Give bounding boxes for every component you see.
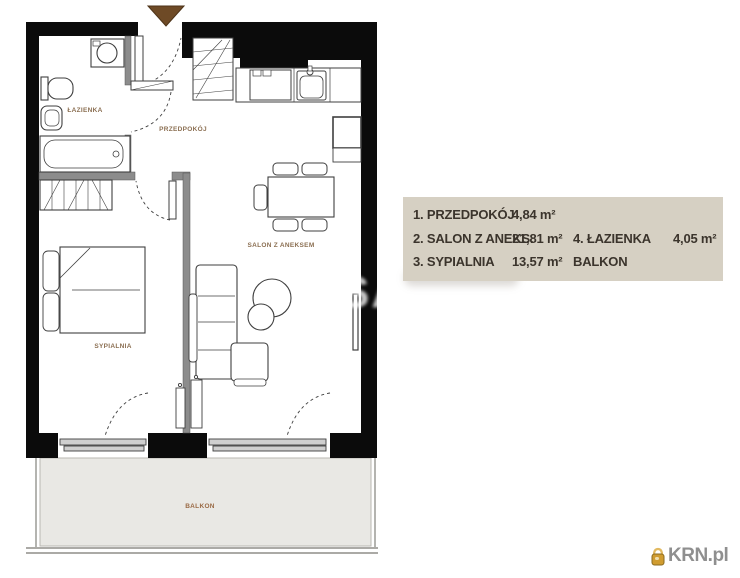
legend-col2-row1 <box>573 208 673 222</box>
legend-room-3-name: 3. SYPIALNIA <box>413 255 512 269</box>
room-label-lazienka: ŁAZIENKA <box>67 107 102 114</box>
kitchen-sink-icon <box>297 66 326 100</box>
stove-icon <box>250 70 291 100</box>
legend-room-4-name: 4. ŁAZIENKA <box>573 232 673 246</box>
floorplan-page: ŁAZIENKA PRZEDPOKÓJ SALON Z ANEKSEM SYPI… <box>0 0 740 578</box>
legend-room-2-area: 21,81 m² <box>512 232 573 246</box>
krn-logo-text: KRN.pl <box>668 545 728 567</box>
tv-icon <box>353 294 358 350</box>
legend-balkon-area <box>673 255 723 269</box>
entrance-door <box>135 36 181 86</box>
room-label-salon: SALON Z ANEKSEM <box>247 242 314 249</box>
dining-set <box>254 163 334 231</box>
room-label-przedpokoj: PRZEDPOKÓJ <box>159 124 207 133</box>
hallway-wardrobe-icon <box>193 38 233 100</box>
bedroom-balcony-door <box>105 393 148 436</box>
sink-icon <box>41 106 62 130</box>
kitchen <box>236 66 361 162</box>
krn-logo[interactable]: KRN.pl <box>650 545 728 567</box>
salon-window <box>209 439 326 451</box>
legend-grid: 1. PRZEDPOKÓJ 4,84 m² 2. SALON Z ANEKS. … <box>403 197 723 269</box>
legend-room-4-area: 4,05 m² <box>673 232 723 246</box>
legend-room-3-area: 13,57 m² <box>512 255 573 269</box>
floor-plan: ŁAZIENKA PRZEDPOKÓJ SALON Z ANEKSEM SYPI… <box>0 0 740 578</box>
legend-balkon-name: BALKON <box>573 255 673 269</box>
dining-table <box>268 177 334 217</box>
bedroom-door <box>136 181 176 220</box>
room-label-balkon: BALKON <box>185 503 215 510</box>
bathroom-door <box>131 81 173 132</box>
legend-room-2-name: 2. SALON Z ANEKS. <box>413 232 512 246</box>
bedroom-window <box>60 439 146 451</box>
bedroom-furniture <box>40 180 145 333</box>
toilet-icon <box>41 77 73 100</box>
legend-col2-row1-area <box>673 208 723 222</box>
bathroom-fixtures <box>40 39 130 172</box>
room-label-sypialnia: SYPIALNIA <box>94 343 131 350</box>
living-room-furniture <box>176 265 358 428</box>
legend-panel: 1. PRZEDPOKÓJ 4,84 m² 2. SALON Z ANEKS. … <box>403 197 723 281</box>
fridge-icon <box>333 117 361 162</box>
balcony-railing <box>26 548 378 553</box>
coffee-tables-icon <box>248 279 291 330</box>
krn-logo-icon <box>650 547 666 566</box>
legend-room-1-area: 4,84 m² <box>512 208 573 222</box>
entrance-arrow-icon <box>148 6 184 26</box>
bed-icon <box>43 247 145 333</box>
bedroom-wardrobe-icon <box>40 180 112 210</box>
washing-machine-icon <box>91 39 124 67</box>
salon-balcony-door <box>287 393 330 436</box>
bathtub-icon <box>40 136 130 172</box>
legend-room-1-name: 1. PRZEDPOKÓJ <box>413 208 512 222</box>
